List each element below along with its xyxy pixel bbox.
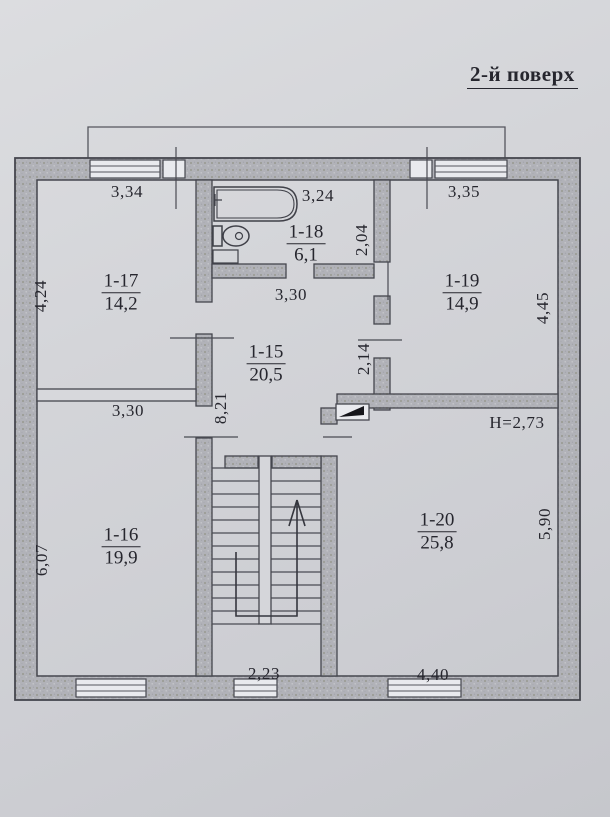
room-1-15-id: 1-15 [247,341,286,364]
wall-hall-right-upper [374,180,390,262]
dim-left-upper: 4,24 [31,280,51,312]
dim-hall-right: 2,14 [354,343,374,375]
toilet-tank [213,226,222,246]
wall-pier-top-left [163,160,185,178]
dim-right-upper: 4,45 [533,292,553,324]
dim-top-left: 3,34 [111,182,143,202]
balcony-outline [88,127,505,158]
bathroom-fixtures [213,187,297,263]
stair-treads-right [271,468,321,624]
wall-outer-left [15,158,37,700]
wall-hall-left-upper [196,180,212,302]
wall-stair-right [321,456,337,676]
wall-bath-bottom-left [212,264,286,278]
wall-stair-right-top [321,408,337,424]
floor-plan-page: 2-й поверх 3,34 3,24 3,35 4,24 6,07 2,04… [0,0,610,817]
stair-divider [259,456,271,624]
page-title: 2-й поверх [467,62,578,89]
dim-bottom-right: 4,40 [417,665,449,685]
room-1-19-label: 1-19 14,9 [443,270,482,314]
room-1-15-label: 1-15 20,5 [247,341,286,385]
room-1-18-id: 1-18 [287,221,326,244]
wall-bath-bottom-right [314,264,374,278]
room-1-20-area: 25,8 [418,532,457,553]
dim-hall-left: 8,21 [211,392,231,424]
wall-hall-right-mid [374,296,390,324]
toilet-drain [236,233,243,240]
wall-stair-top-left [225,456,258,468]
room-1-17-label: 1-17 14,2 [102,270,141,314]
floor-plan-drawing [0,0,610,817]
room-1-16-id: 1-16 [102,524,141,547]
bathroom-cabinet [213,250,238,263]
room-1-17-area: 14,2 [102,293,141,314]
wall-pier-top-right [410,160,432,178]
dim-top-mid: 3,24 [302,186,334,206]
window-room17 [90,160,160,178]
room-1-20-id: 1-20 [418,509,457,532]
dim-hall-top: 3,30 [275,285,307,305]
room-1-17-id: 1-17 [102,270,141,293]
dim-left-lower: 6,07 [32,544,52,576]
wall-hall-left-mid [196,334,212,406]
room-1-18-label: 1-18 6,1 [287,221,326,265]
bathtub-inner [217,190,294,218]
wall-room19-room20 [337,394,558,408]
room-1-15-area: 20,5 [247,364,286,385]
wall-room17-room16 [37,389,196,401]
dim-room16-top: 3,30 [112,401,144,421]
dim-top-right: 3,35 [448,182,480,202]
ceiling-height-label: Н=2,73 [489,413,544,433]
bathtub-faucet-icon [215,194,222,206]
room-1-19-id: 1-19 [443,270,482,293]
window-room19 [435,160,507,178]
room-1-20-label: 1-20 25,8 [418,509,457,553]
room-1-16-label: 1-16 19,9 [102,524,141,568]
staircase [212,456,321,624]
room-1-19-area: 14,9 [443,293,482,314]
room-1-18-area: 6,1 [287,244,326,265]
dim-bottom-stair: 2,23 [248,664,280,684]
window-room16 [76,679,146,697]
wall-hall-left-lower [196,438,212,676]
wall-stair-top-right [272,456,321,468]
dim-right-lower: 5,90 [535,508,555,540]
wall-outer-right [558,158,580,700]
bathtub [214,187,297,221]
dim-bath-right: 2,04 [352,224,372,256]
vent-duct [336,404,369,420]
room-1-16-area: 19,9 [102,547,141,568]
